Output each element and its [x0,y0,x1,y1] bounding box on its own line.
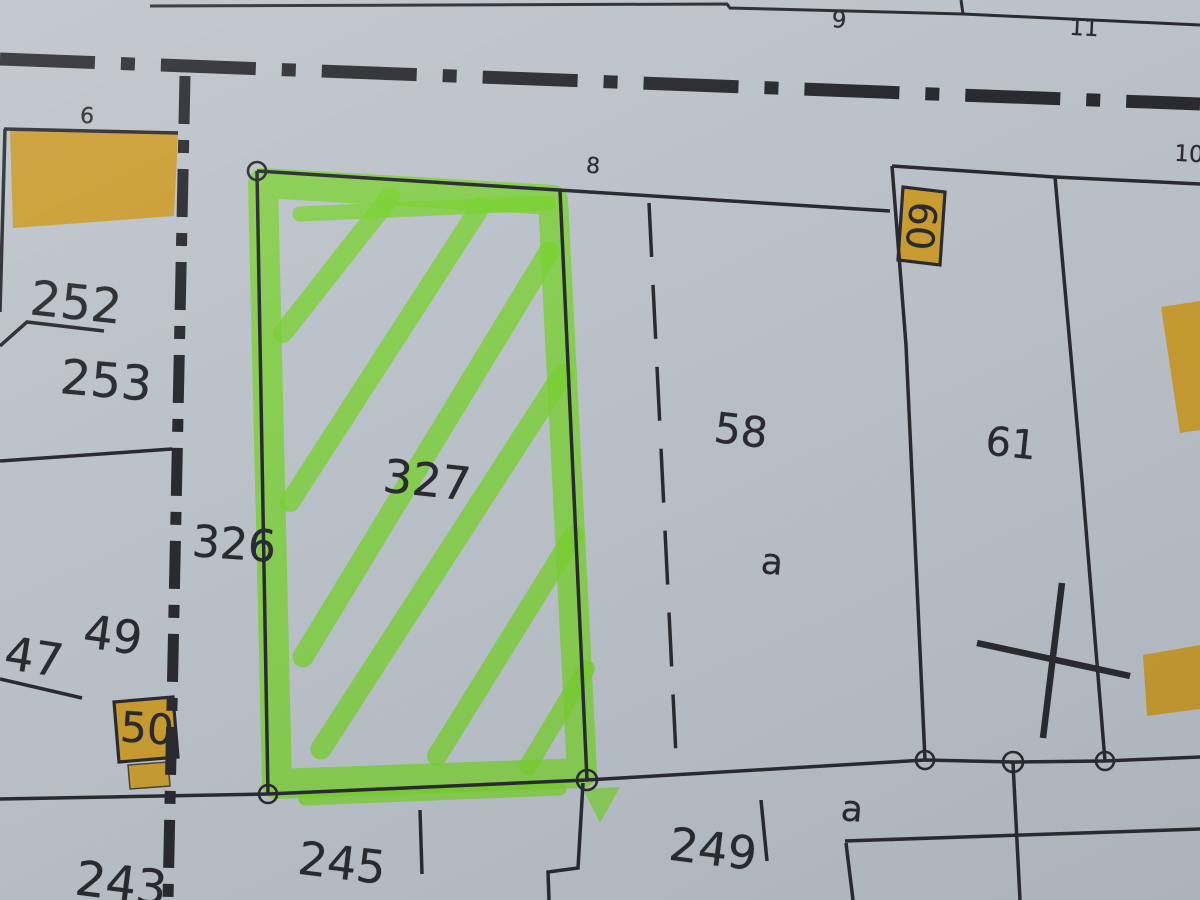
label-subparcel-a-249: a [839,791,864,829]
label-parcel-8: 8 [585,156,601,179]
label-house-60: 60 [900,200,943,252]
label-house-50: 50 [119,706,175,752]
cadastral-map-photo: 689111025225332632758a614947506024324524… [0,0,1200,900]
label-parcel-10: 10 [1174,143,1200,168]
label-parcel-253: 253 [58,353,153,409]
label-parcel-252: 252 [28,274,124,331]
label-parcel-47: 47 [1,630,66,685]
label-parcel-6: 6 [79,106,95,129]
label-parcel-49: 49 [81,608,145,662]
label-parcel-326: 326 [191,520,278,570]
label-subparcel-a-58: a [759,544,784,582]
label-parcel-249: 249 [667,821,760,877]
label-parcel-327: 327 [381,453,473,508]
label-parcel-11: 11 [1069,17,1099,42]
label-parcel-245: 245 [296,835,389,891]
label-parcel-58: 58 [712,407,770,455]
label-parcel-61: 61 [984,421,1039,466]
label-parcel-9: 9 [831,9,847,33]
label-parcel-243: 243 [73,855,170,900]
map-labels: 689111025225332632758a614947506024324524… [0,0,1200,900]
